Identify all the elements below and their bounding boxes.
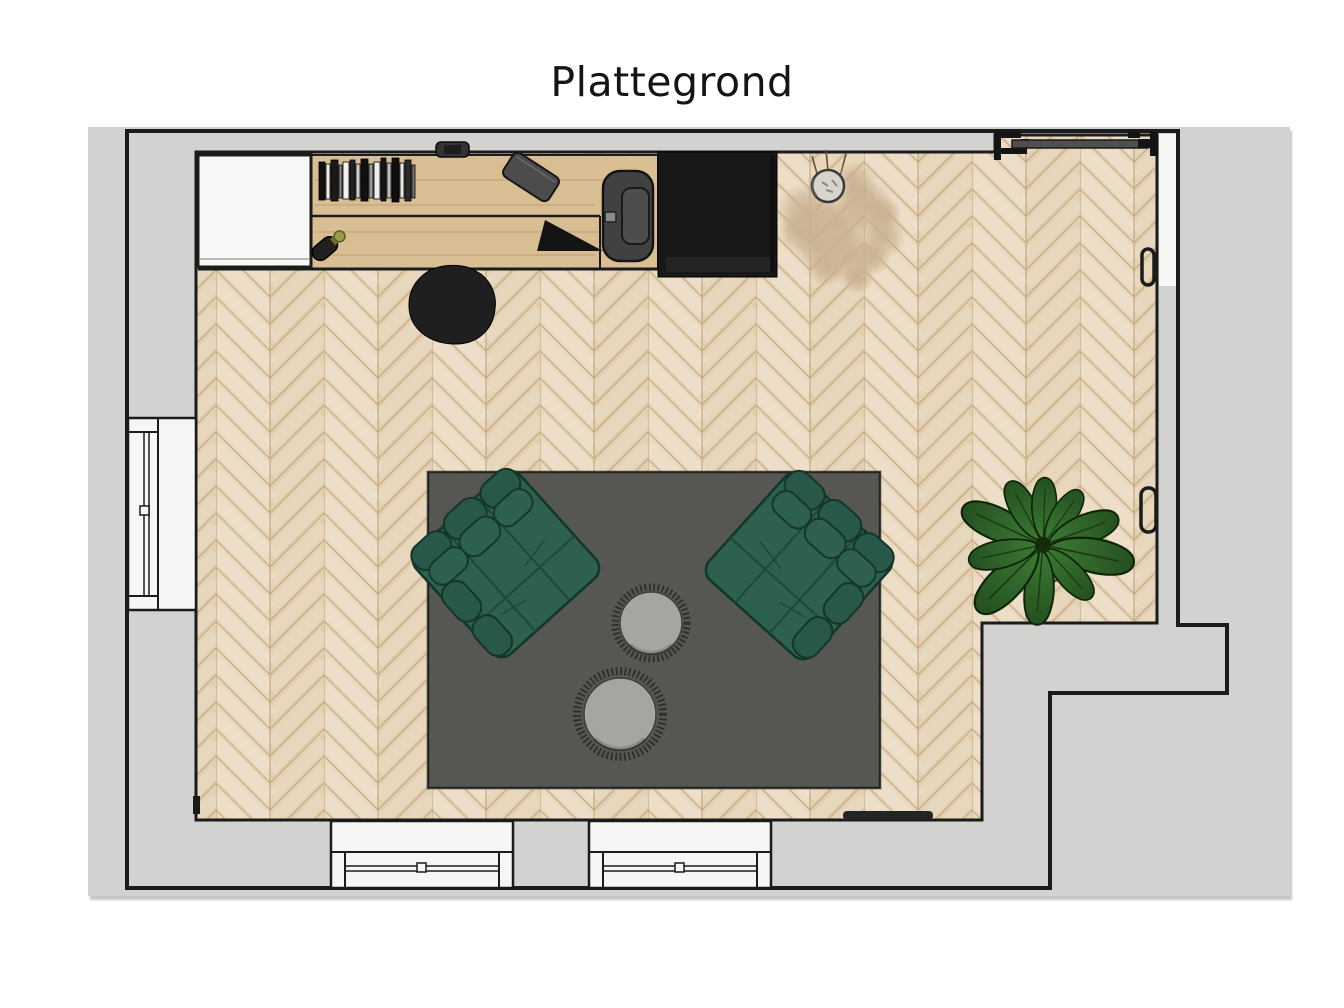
floor-plan-canvas [88, 127, 1290, 896]
desk-chair [409, 265, 495, 344]
window-bottom-right [589, 821, 771, 888]
book-row [319, 158, 415, 202]
floor-plan-page: Plattegrond [0, 0, 1344, 1008]
white-cabinet [198, 155, 311, 267]
wall-fixture [436, 142, 469, 157]
page-title: Plattegrond [0, 58, 1344, 106]
wall-bar [843, 811, 933, 820]
wardrobe [658, 152, 777, 277]
basin-unit [603, 171, 653, 261]
window-bottom-left [331, 821, 513, 888]
wall-socket [193, 796, 200, 814]
right-wall-white-segment [1159, 134, 1176, 286]
window-left-wall [128, 418, 196, 610]
door-panel [1012, 140, 1148, 148]
